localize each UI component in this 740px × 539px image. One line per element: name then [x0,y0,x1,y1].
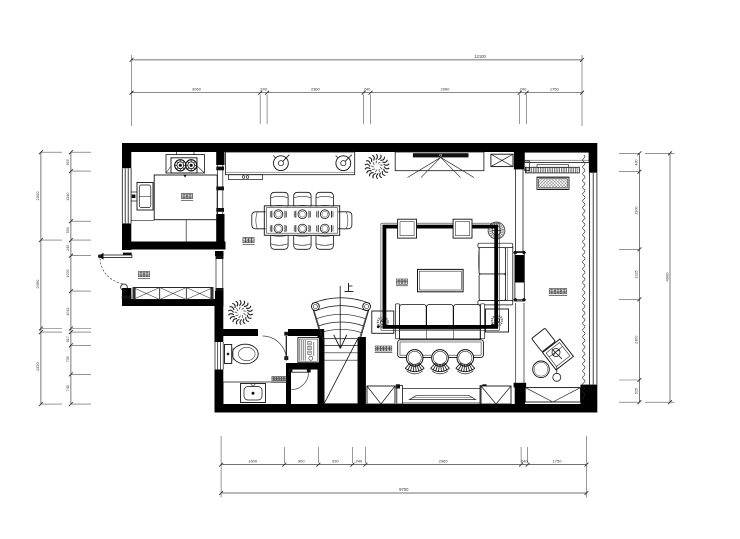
svg-text:2960: 2960 [441,87,451,92]
svg-text:240: 240 [66,245,70,251]
svg-text:9700: 9700 [399,487,409,492]
svg-text:430: 430 [635,159,639,165]
svg-text:517: 517 [66,336,70,342]
svg-text:240: 240 [520,87,527,92]
svg-text:240: 240 [364,87,371,92]
svg-text:240: 240 [260,87,267,92]
svg-text:1320: 1320 [35,361,40,371]
svg-text:900: 900 [298,458,305,463]
svg-text:240: 240 [521,458,528,463]
svg-text:2360: 2360 [311,87,321,92]
svg-text:500: 500 [66,227,70,233]
svg-text:2960: 2960 [439,458,449,463]
svg-text:2050: 2050 [35,279,40,289]
svg-text:2300: 2300 [635,206,639,214]
svg-text:1600: 1600 [248,458,258,463]
svg-text:740: 740 [66,385,70,391]
svg-text:1750: 1750 [553,458,563,463]
svg-text:1000: 1000 [66,269,70,277]
svg-text:1325: 1325 [635,270,639,278]
svg-text:525: 525 [635,388,639,394]
svg-text:240: 240 [356,458,363,463]
svg-text:2300: 2300 [635,336,639,344]
svg-text:1750: 1750 [550,87,560,92]
svg-text:930: 930 [332,458,339,463]
svg-text:2300: 2300 [35,191,40,201]
svg-text:4900: 4900 [664,272,669,282]
svg-text:3060: 3060 [192,87,202,92]
svg-text:12100: 12100 [474,54,486,59]
svg-text:1340: 1340 [66,193,70,201]
svg-text:730: 730 [66,356,70,362]
svg-text:1013: 1013 [66,307,70,315]
svg-text:500: 500 [66,159,70,165]
